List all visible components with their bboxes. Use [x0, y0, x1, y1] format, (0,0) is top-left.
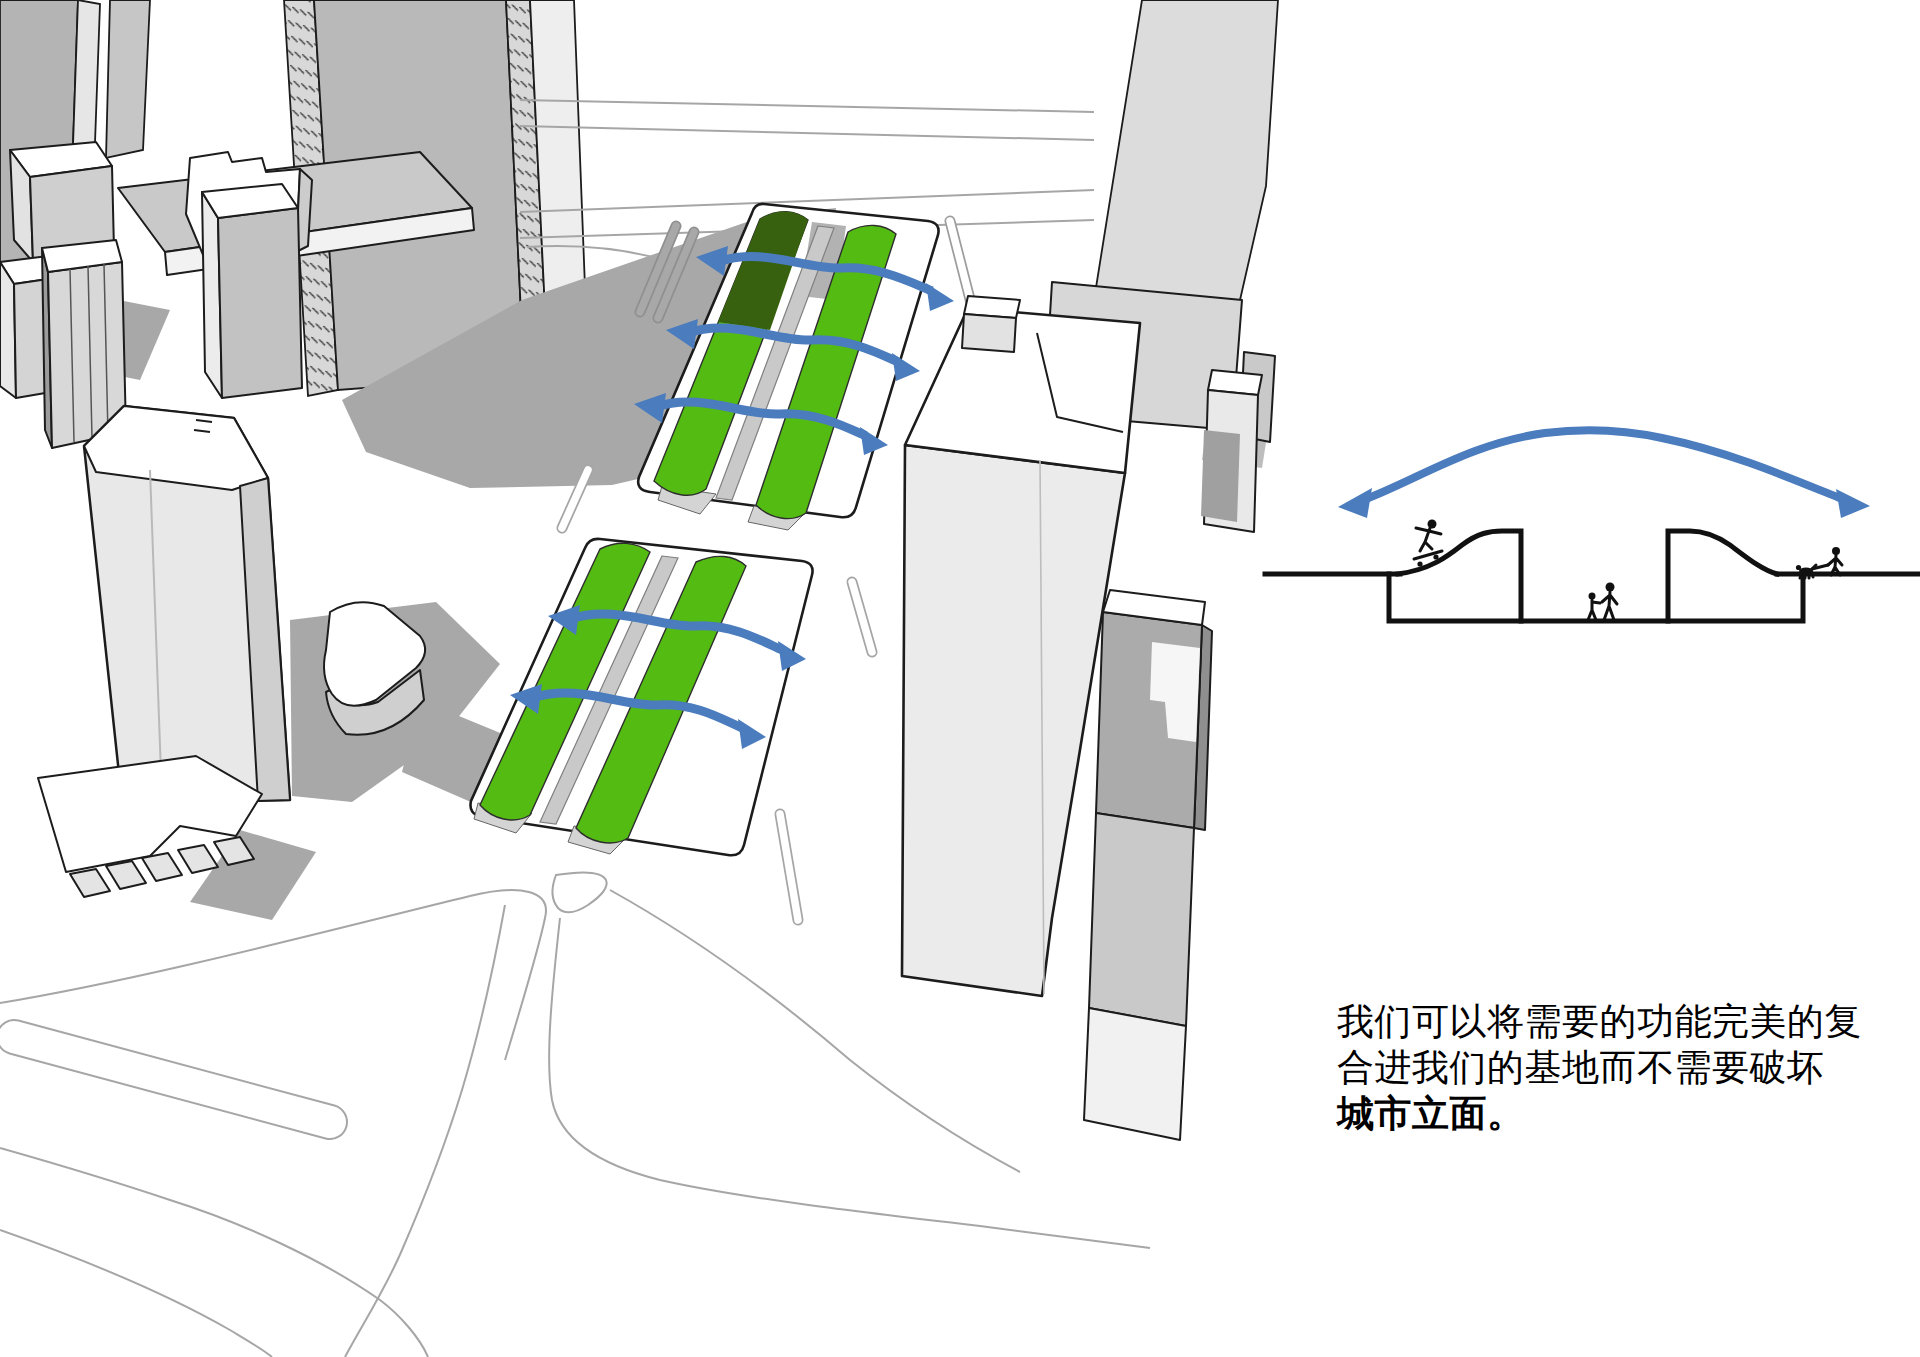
green-parcel-lower: [470, 539, 812, 855]
mid-left-main-tower: [84, 406, 290, 802]
caption-line-1: 我们可以将需要的功能完美的复: [1337, 999, 1897, 1045]
section-diagram: [1265, 430, 1920, 621]
building-group-right: [902, 282, 1275, 1140]
airflow-arrow: [1338, 430, 1870, 518]
small-white-box: [1201, 370, 1262, 532]
caption-line-3-bold: 城市立面。: [1337, 1091, 1897, 1137]
caption-line-2: 合进我们的基地而不需要破坏: [1337, 1045, 1897, 1091]
arrowhead-left: [1338, 488, 1372, 518]
pavilion-shadow: [190, 830, 316, 920]
caption-text: 我们可以将需要的功能完美的复 合进我们的基地而不需要破坏 城市立面。: [1337, 999, 1897, 1137]
arrowhead-right: [1836, 489, 1870, 518]
tower-slab-small: [106, 0, 150, 158]
adult-and-child-figures: [1588, 583, 1617, 621]
tower-slab-top-right: [1094, 0, 1278, 300]
presentation-slide: 我们可以将需要的功能完美的复 合进我们的基地而不需要破坏 城市立面。: [0, 0, 1920, 1357]
tiny-white-box-top: [962, 296, 1020, 352]
lower-white-building: [1084, 590, 1212, 1140]
diagram-canvas: [0, 0, 1920, 1357]
tower-c: [202, 184, 302, 398]
city-axon-diagram: [0, 0, 1278, 1357]
traffic-island: [552, 872, 606, 912]
